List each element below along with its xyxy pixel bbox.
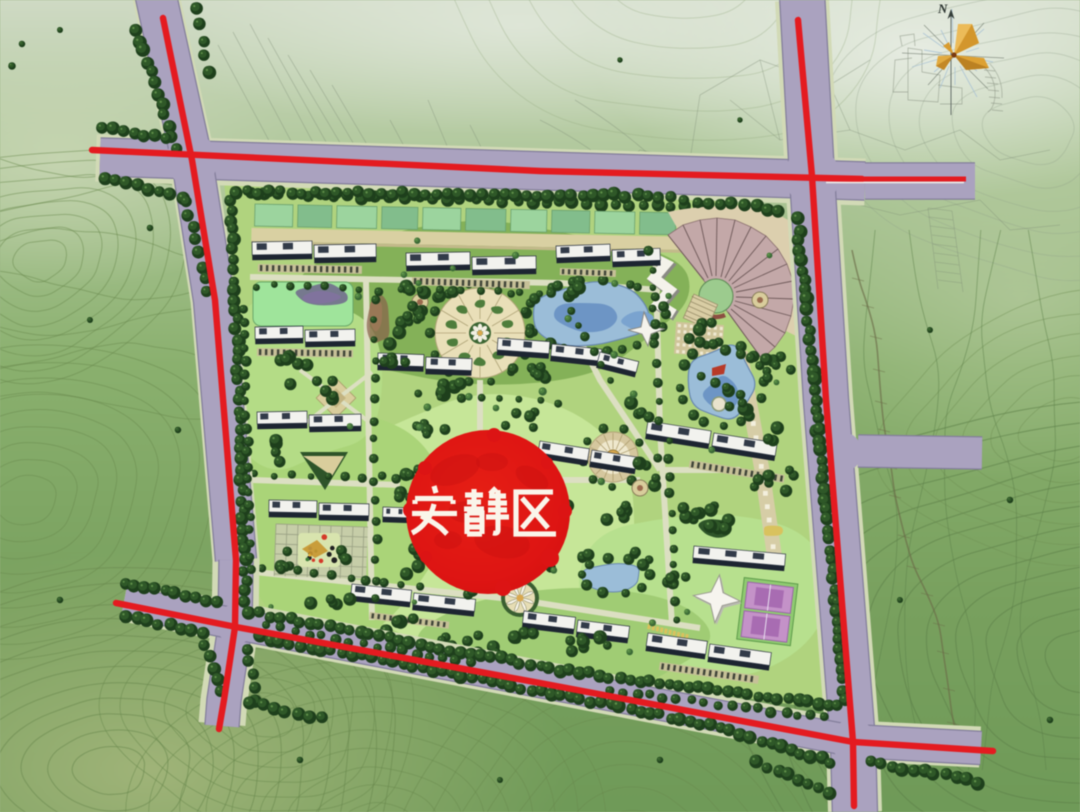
svg-text:N: N xyxy=(937,1,948,16)
